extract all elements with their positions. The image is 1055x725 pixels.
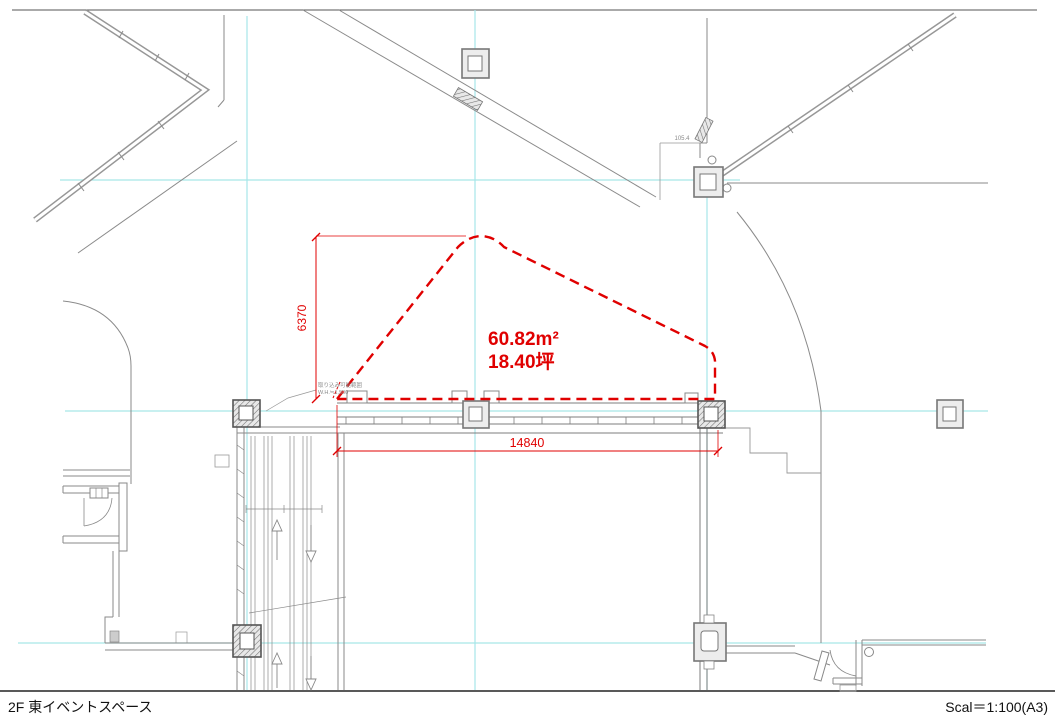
small-dimension-label: 105.4 [674, 136, 690, 142]
column-hatched [233, 625, 261, 657]
floor-plan-canvas: 105.4 [0, 0, 1055, 725]
storefront-wall [337, 391, 723, 433]
grid-bubble [723, 184, 731, 192]
corridor-edge-diagonal [303, 10, 656, 207]
fixture-symbol [865, 648, 874, 657]
title-block: 2F 東イベントスペース Scal＝1:100(A3) [8, 699, 1048, 715]
southeast-door [726, 640, 986, 691]
dimension-vertical-label: 6370 [295, 304, 309, 331]
curved-corridor-edge-east [737, 212, 821, 643]
columns [233, 49, 963, 669]
west-rooms [63, 470, 237, 650]
corridor-railing-northeast [716, 15, 955, 178]
grid-bubble [708, 156, 716, 164]
column-hatched [698, 401, 725, 428]
column [462, 49, 489, 78]
wall-mullions [346, 417, 710, 424]
door-swing-arc [84, 498, 112, 526]
column [694, 167, 723, 197]
drawing-scale: Scal＝1:100(A3) [945, 699, 1048, 715]
sheet-border [0, 10, 1055, 691]
area-label-m2: 60.82m² [488, 329, 559, 350]
column [937, 400, 963, 428]
area-label-tsubo: 18.40坪 [488, 351, 555, 373]
drawing-title: 2F 東イベントスペース [8, 699, 153, 715]
hatched-connector [695, 117, 713, 142]
door-leaf [814, 651, 829, 681]
grid-lines [18, 10, 988, 690]
door-swing-arc [830, 650, 856, 676]
atrium-railing [35, 12, 237, 253]
dimension-horizontal-label: 14840 [510, 436, 545, 450]
column [694, 615, 726, 669]
tiny-annotation-line1: 取り込み可能範囲 [318, 381, 363, 389]
curved-corridor-edge-west [63, 301, 131, 484]
event-space-overlay: 6370 14840 60.82m² 18.40坪 [295, 233, 722, 457]
event-space-boundary [337, 236, 715, 399]
tiny-annotation-line2: W.H.≒1,500 [318, 390, 348, 396]
column-hatched [233, 400, 260, 427]
shutter-box [347, 391, 367, 403]
dimension-vertical [312, 233, 466, 403]
column [463, 401, 489, 428]
